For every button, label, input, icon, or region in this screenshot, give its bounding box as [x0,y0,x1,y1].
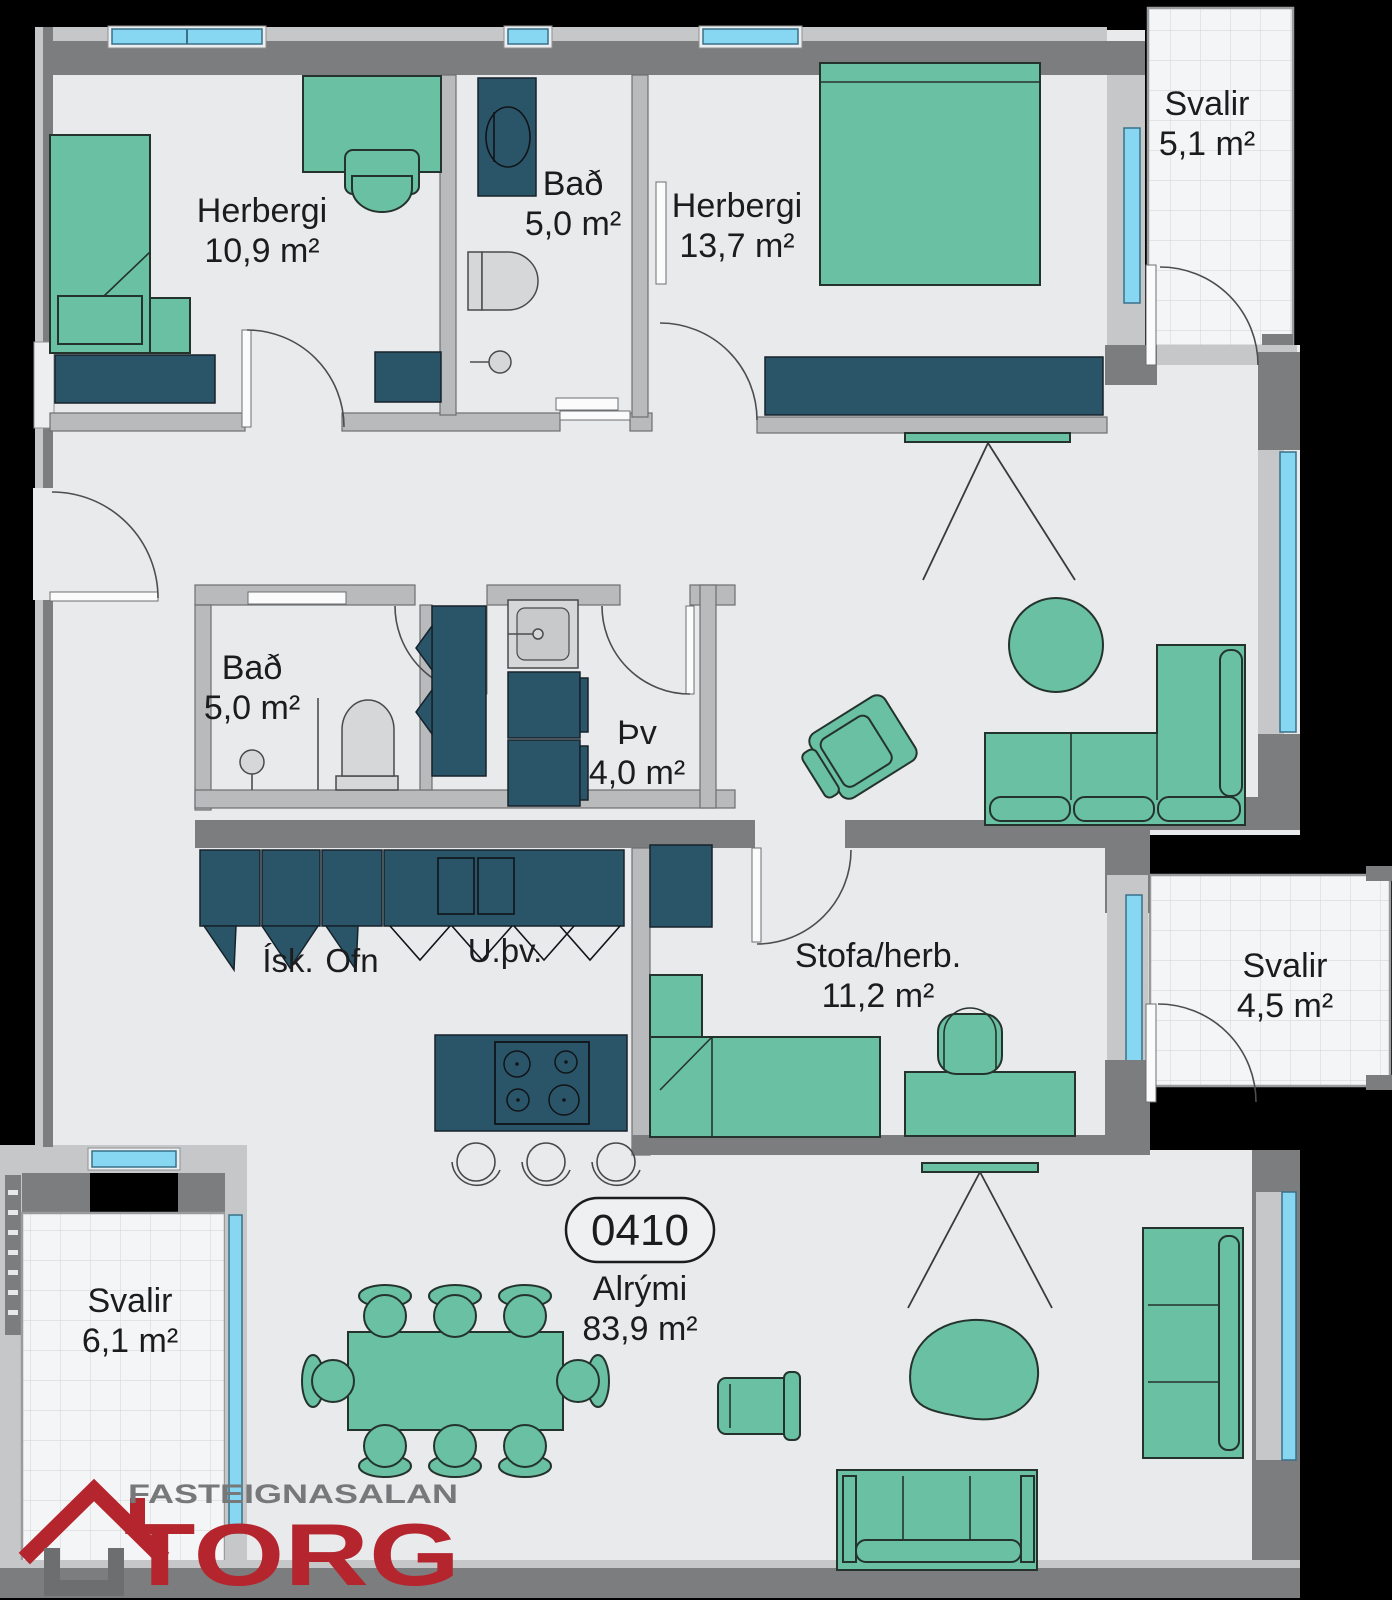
vent-slat [8,1310,18,1315]
dining-chair [364,1295,406,1337]
wardrobe [765,357,1103,415]
sofa-back-cushion [990,797,1070,821]
wall-segment [1105,820,1150,870]
dresser [375,352,441,402]
room-area-label: 10,9 m² [204,232,319,270]
shelf [248,592,346,604]
vent-slat [8,1250,18,1255]
room-area-label: 6,1 m² [82,1322,178,1360]
dining-chair [504,1425,546,1467]
shelf [556,398,618,410]
dryer [508,740,580,806]
window-glass [92,1151,176,1167]
room-name-label: Stofa/herb. [795,937,961,975]
unit-area-value: 83,9 m² [582,1310,697,1348]
kitchen-oven-label: Ofn [325,942,378,979]
vent-slat [8,1270,18,1275]
wall-segment [1366,866,1392,881]
door-opening [33,488,55,600]
desk [905,1072,1075,1136]
wall-segment [342,413,560,431]
window-glass [1126,895,1142,1067]
burner-dot [515,1062,519,1066]
dining-chair [312,1360,354,1402]
toilet-bowl [482,252,538,310]
wall-segment [1105,1060,1150,1155]
unit-area-name: Alrými [593,1270,687,1308]
dining-table [348,1332,563,1430]
room-area-label: 4,5 m² [1237,987,1333,1025]
wardrobe [55,355,215,403]
window-glass [1124,128,1140,303]
door-leaf [686,606,694,694]
door-leaf [752,848,761,942]
blob-table [910,1320,1038,1419]
sofa-back-cushion [1219,1236,1239,1450]
cabinet [262,850,320,926]
bed [650,1037,880,1137]
door-leaf [242,330,251,427]
burner-dot [564,1060,568,1064]
toilet-bowl [342,700,394,776]
wall-segment [1256,1192,1282,1460]
door-leaf [1146,265,1156,365]
toilet-tank [468,252,482,310]
sofa-back-cushion [1158,797,1240,821]
door-sidelight [656,182,666,284]
room-name-label: Svalir [87,1282,172,1320]
window-glass [703,29,798,44]
wall-segment [440,75,456,415]
sink [489,351,511,373]
bed-pillow [58,296,142,344]
tv [922,1163,1038,1172]
fridge [200,850,260,926]
vent-slat [8,1230,18,1235]
room-area-label: 4,0 m² [589,754,685,792]
washer [508,672,580,738]
vent-slat [8,1190,18,1195]
window-glass [508,29,548,44]
burner-dot [562,1098,566,1102]
room-name-label: Bað [543,165,604,203]
logo-name-text: TORG [124,1505,460,1600]
wall-segment [1366,1075,1392,1090]
balcony-tiles [1148,8,1293,346]
sofa-arm [843,1476,856,1562]
bed-pillow [650,975,702,1037]
door-leaf-entrance [50,592,158,601]
balcony-svalir-5-1 [1148,8,1293,347]
room-name-label: Svalir [1164,85,1249,123]
shower-head [240,750,264,774]
wall-segment [632,75,648,417]
toilet-tank [336,776,398,790]
room-name-label: Bað [222,649,283,687]
wall-segment [50,413,245,431]
room-area-label: 13,7 m² [679,227,794,265]
kitchen-fridge-label: Ísk. [262,942,313,979]
oven [322,850,382,926]
window-glass [1282,1192,1296,1460]
double-bed [820,63,1040,285]
vent-slat [8,1210,18,1215]
floorplan-svg: Herbergi 10,9 m² Bað 5,0 m² Herbergi 13,… [0,0,1392,1600]
door-leaf [560,411,630,420]
wall-segment [1258,352,1300,450]
wall-segment [1258,734,1300,802]
wall-segment [1107,41,1145,75]
faucet-knob [533,629,543,639]
dining-chair [364,1425,406,1467]
room-name-label: Svalir [1242,947,1327,985]
room-name-label: Herbergi [672,187,802,225]
window-glass [1280,452,1296,732]
room-area-label: 11,2 m² [822,977,935,1015]
wall-segment [757,417,1107,433]
room-area-label: 5,0 m² [525,205,621,243]
door-leaf [1146,1004,1156,1102]
round-table [1009,598,1103,692]
room-area-label: 5,0 m² [204,689,300,727]
dining-chair [434,1295,476,1337]
dining-chair [557,1360,599,1402]
wall-segment [632,848,650,1155]
nightstand [150,298,190,353]
sofa-back-cushion [856,1540,1021,1562]
burner-dot [516,1098,520,1102]
tall-unit [650,845,712,927]
kitchen-island [435,1035,627,1131]
wall-segment [195,820,755,848]
tv [905,433,1070,442]
kitchen-dishwasher-label: U.þv. [468,932,543,969]
vent-slat [8,1290,18,1295]
sofa-back-cushion [1220,650,1242,796]
room-area-label: 5,1 m² [1159,125,1255,163]
room-name-label: Herbergi [197,192,327,230]
sofa-arm [1021,1476,1034,1562]
wall-segment [700,585,716,808]
desk-chair [938,1014,1002,1074]
unit-number: 0410 [591,1206,689,1255]
sofa-back-cushion [1074,797,1154,821]
floorplan-canvas: Herbergi 10,9 m² Bað 5,0 m² Herbergi 13,… [0,0,1392,1600]
machine-door [580,746,588,800]
room-name-label: Þv [617,714,657,752]
machine-door [580,678,588,732]
wall-segment [195,790,735,808]
tall-cabinet [432,606,486,776]
dining-chair [434,1425,476,1467]
dining-chair [504,1295,546,1337]
small-armchair-back [784,1372,800,1440]
